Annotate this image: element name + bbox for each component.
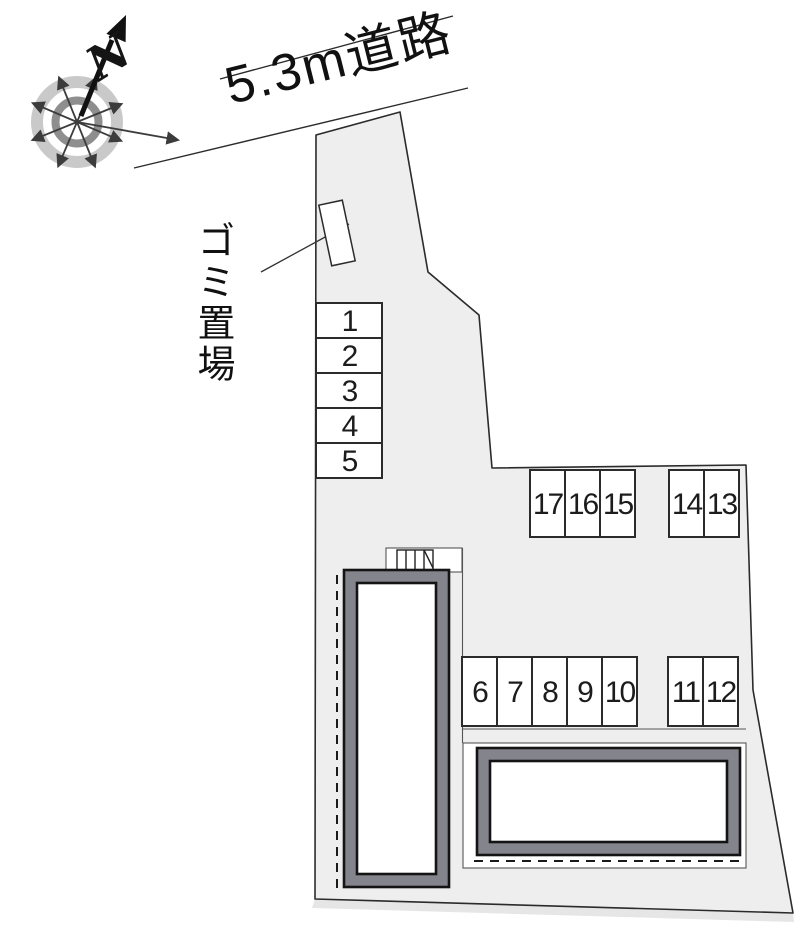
parking-space-1: 1: [316, 303, 382, 338]
parking-space-label: 6: [472, 676, 488, 709]
parking-space-label: 8: [542, 676, 558, 709]
parking-space-8: 8: [532, 657, 567, 726]
parking-space-11: 11: [668, 657, 703, 726]
compass-rose: N: [33, 15, 179, 167]
parking-space-15: 15: [600, 470, 635, 537]
parking-space-label: 5: [342, 445, 358, 478]
parking-space-label: 17: [533, 488, 564, 521]
parking-space-label: 7: [507, 676, 523, 709]
parking-space-2: 2: [316, 338, 382, 373]
parking-space-3: 3: [316, 373, 382, 408]
parking-space-label: 13: [707, 488, 738, 521]
parking-space-6: 6: [462, 657, 497, 726]
garbage-label: ゴミ置場: [193, 221, 231, 385]
parking-space-label: 16: [568, 488, 599, 521]
parking-space-9: 9: [567, 657, 602, 726]
parking-space-label: 10: [605, 676, 636, 709]
parking-space-16: 16: [565, 470, 600, 537]
parking-space-label: 14: [672, 488, 703, 521]
building-left: [344, 570, 449, 887]
parking-space-label: 1: [342, 305, 358, 338]
parking-space-label: 11: [672, 676, 700, 709]
stairs-icon: [397, 550, 433, 571]
parking-space-label: 15: [603, 488, 634, 521]
parking-space-13: 13: [704, 470, 739, 537]
parking-space-5: 5: [316, 443, 382, 478]
parking-space-label: 3: [342, 375, 358, 408]
site-plan-drawing: 1 2 3 4 5 17 16 15 14 13 6 7 8 9 10 11 1…: [0, 0, 800, 940]
parking-space-14: 14: [669, 470, 704, 537]
building-right: [477, 748, 740, 855]
parking-space-label: 2: [342, 340, 358, 373]
site-plan: 1 2 3 4 5 17 16 15 14 13 6 7 8 9 10 11 1…: [0, 0, 800, 940]
parking-space-12: 12: [703, 657, 738, 726]
parking-space-label: 4: [342, 410, 358, 443]
parking-space-17: 17: [530, 470, 565, 537]
parking-space-7: 7: [497, 657, 532, 726]
parking-space-label: 12: [706, 676, 737, 709]
parking-space-10: 10: [602, 657, 637, 726]
parking-space-label: 9: [577, 676, 593, 709]
parking-space-4: 4: [316, 408, 382, 443]
